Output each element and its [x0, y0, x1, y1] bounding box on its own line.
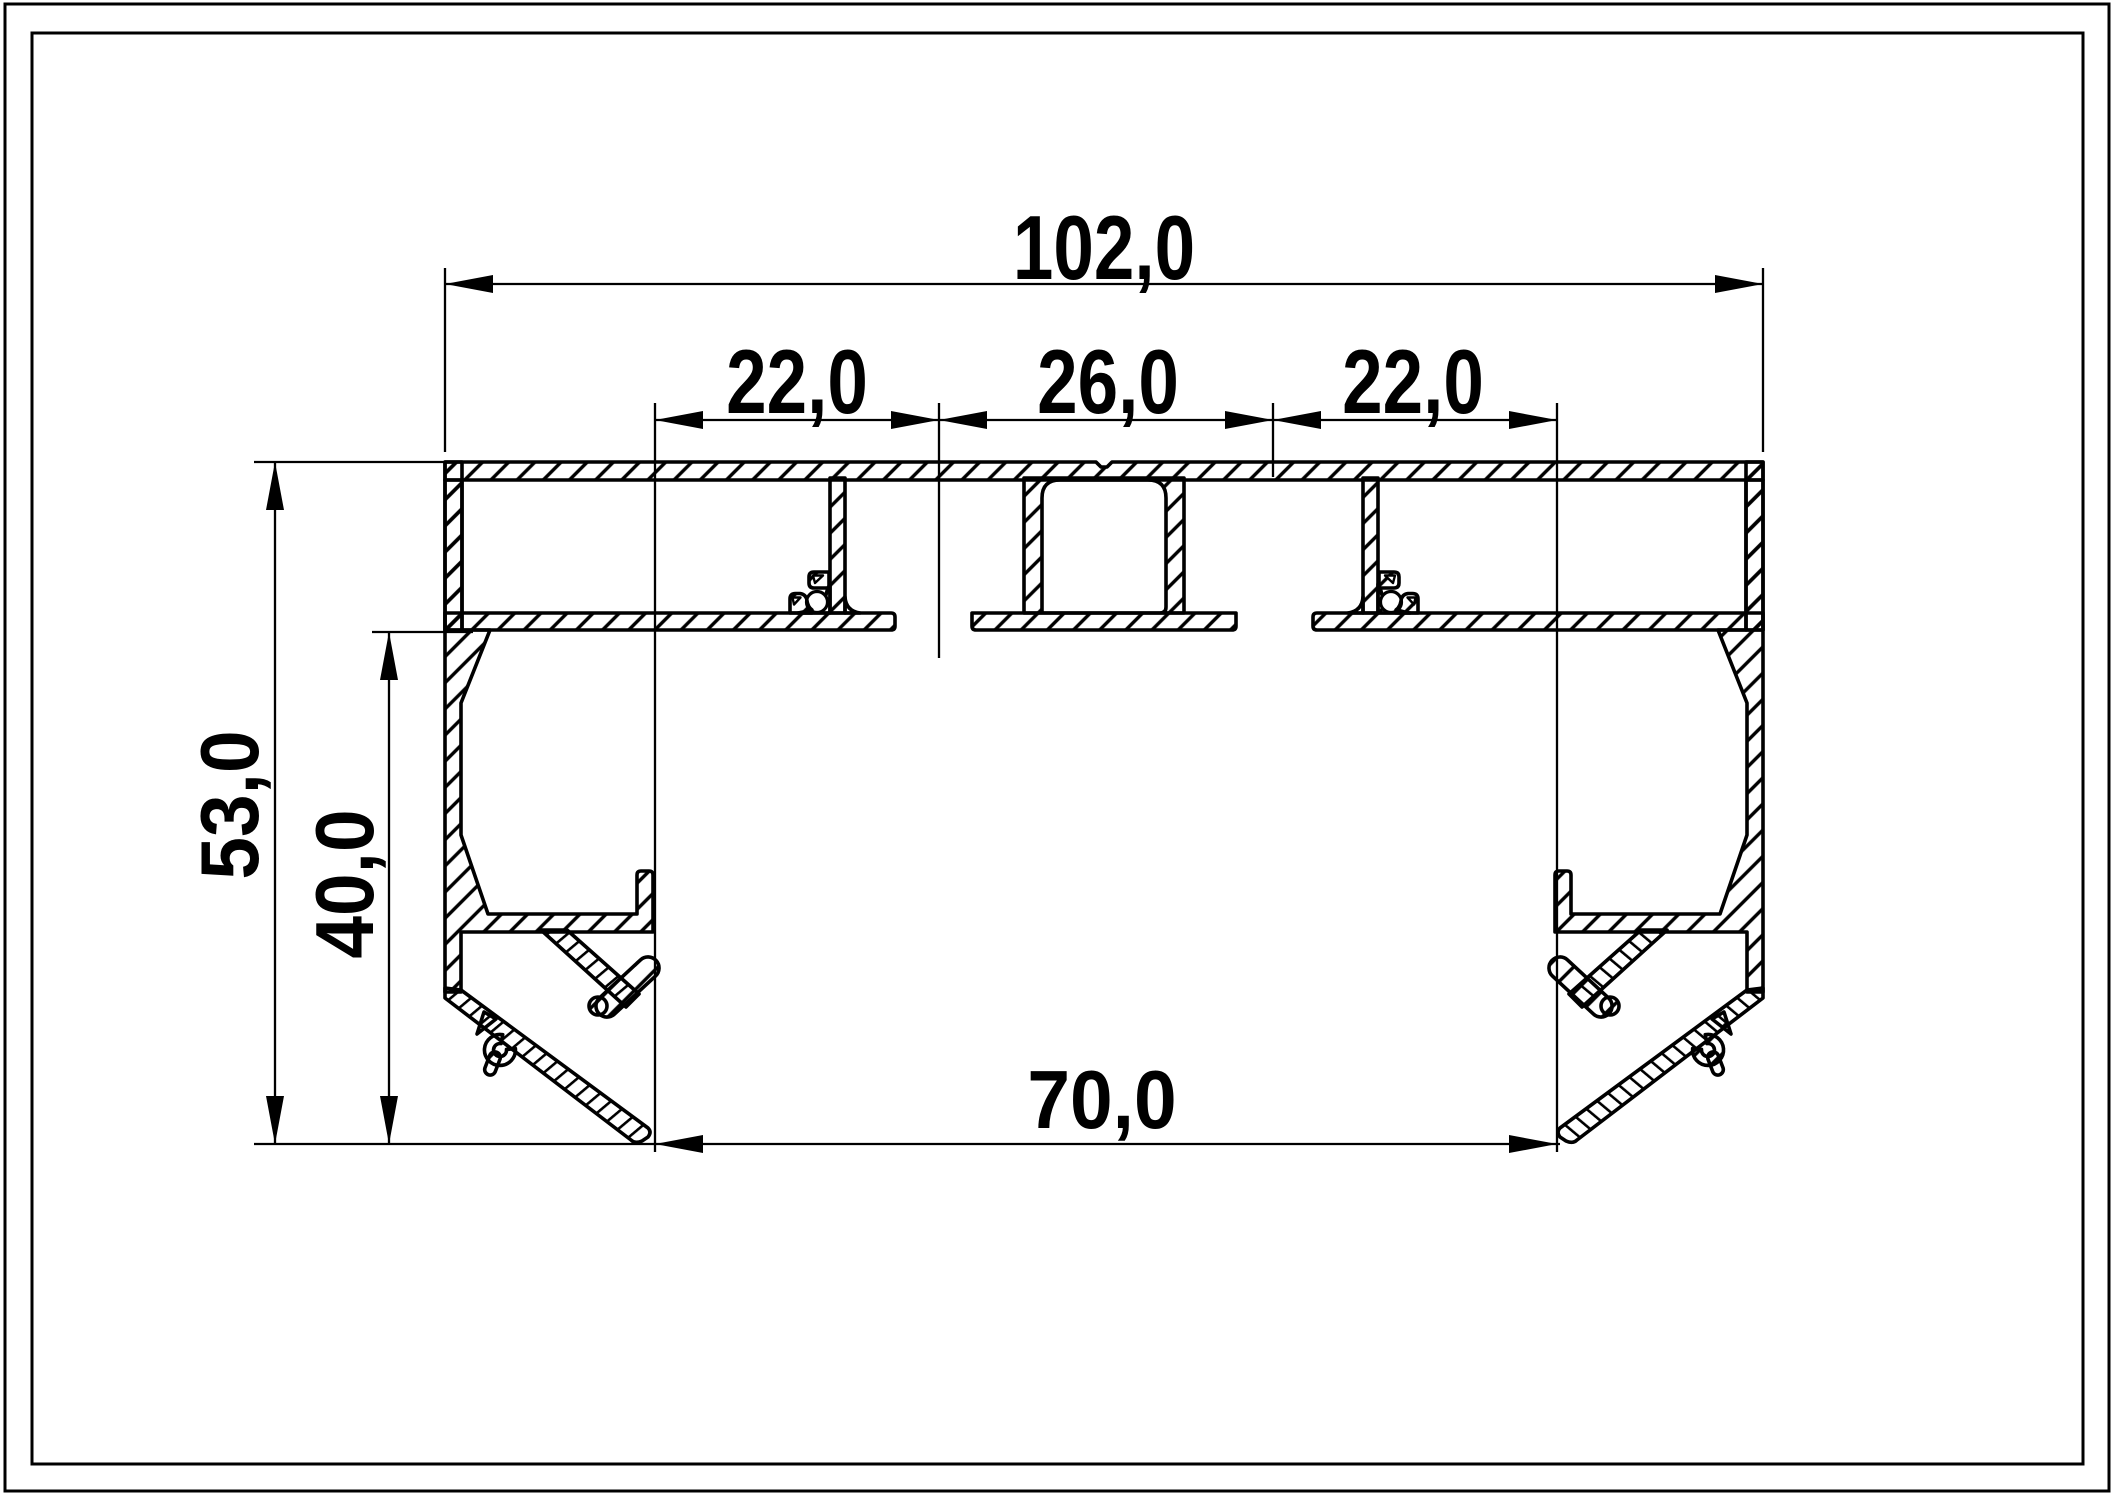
svg-text:22,0: 22,0	[1342, 331, 1484, 433]
svg-text:70,0: 70,0	[1027, 1053, 1176, 1145]
svg-text:26,0: 26,0	[1037, 331, 1179, 433]
svg-text:102,0: 102,0	[1013, 197, 1195, 299]
svg-text:22,0: 22,0	[726, 331, 868, 433]
svg-text:40,0: 40,0	[298, 809, 390, 958]
svg-text:53,0: 53,0	[183, 730, 275, 879]
